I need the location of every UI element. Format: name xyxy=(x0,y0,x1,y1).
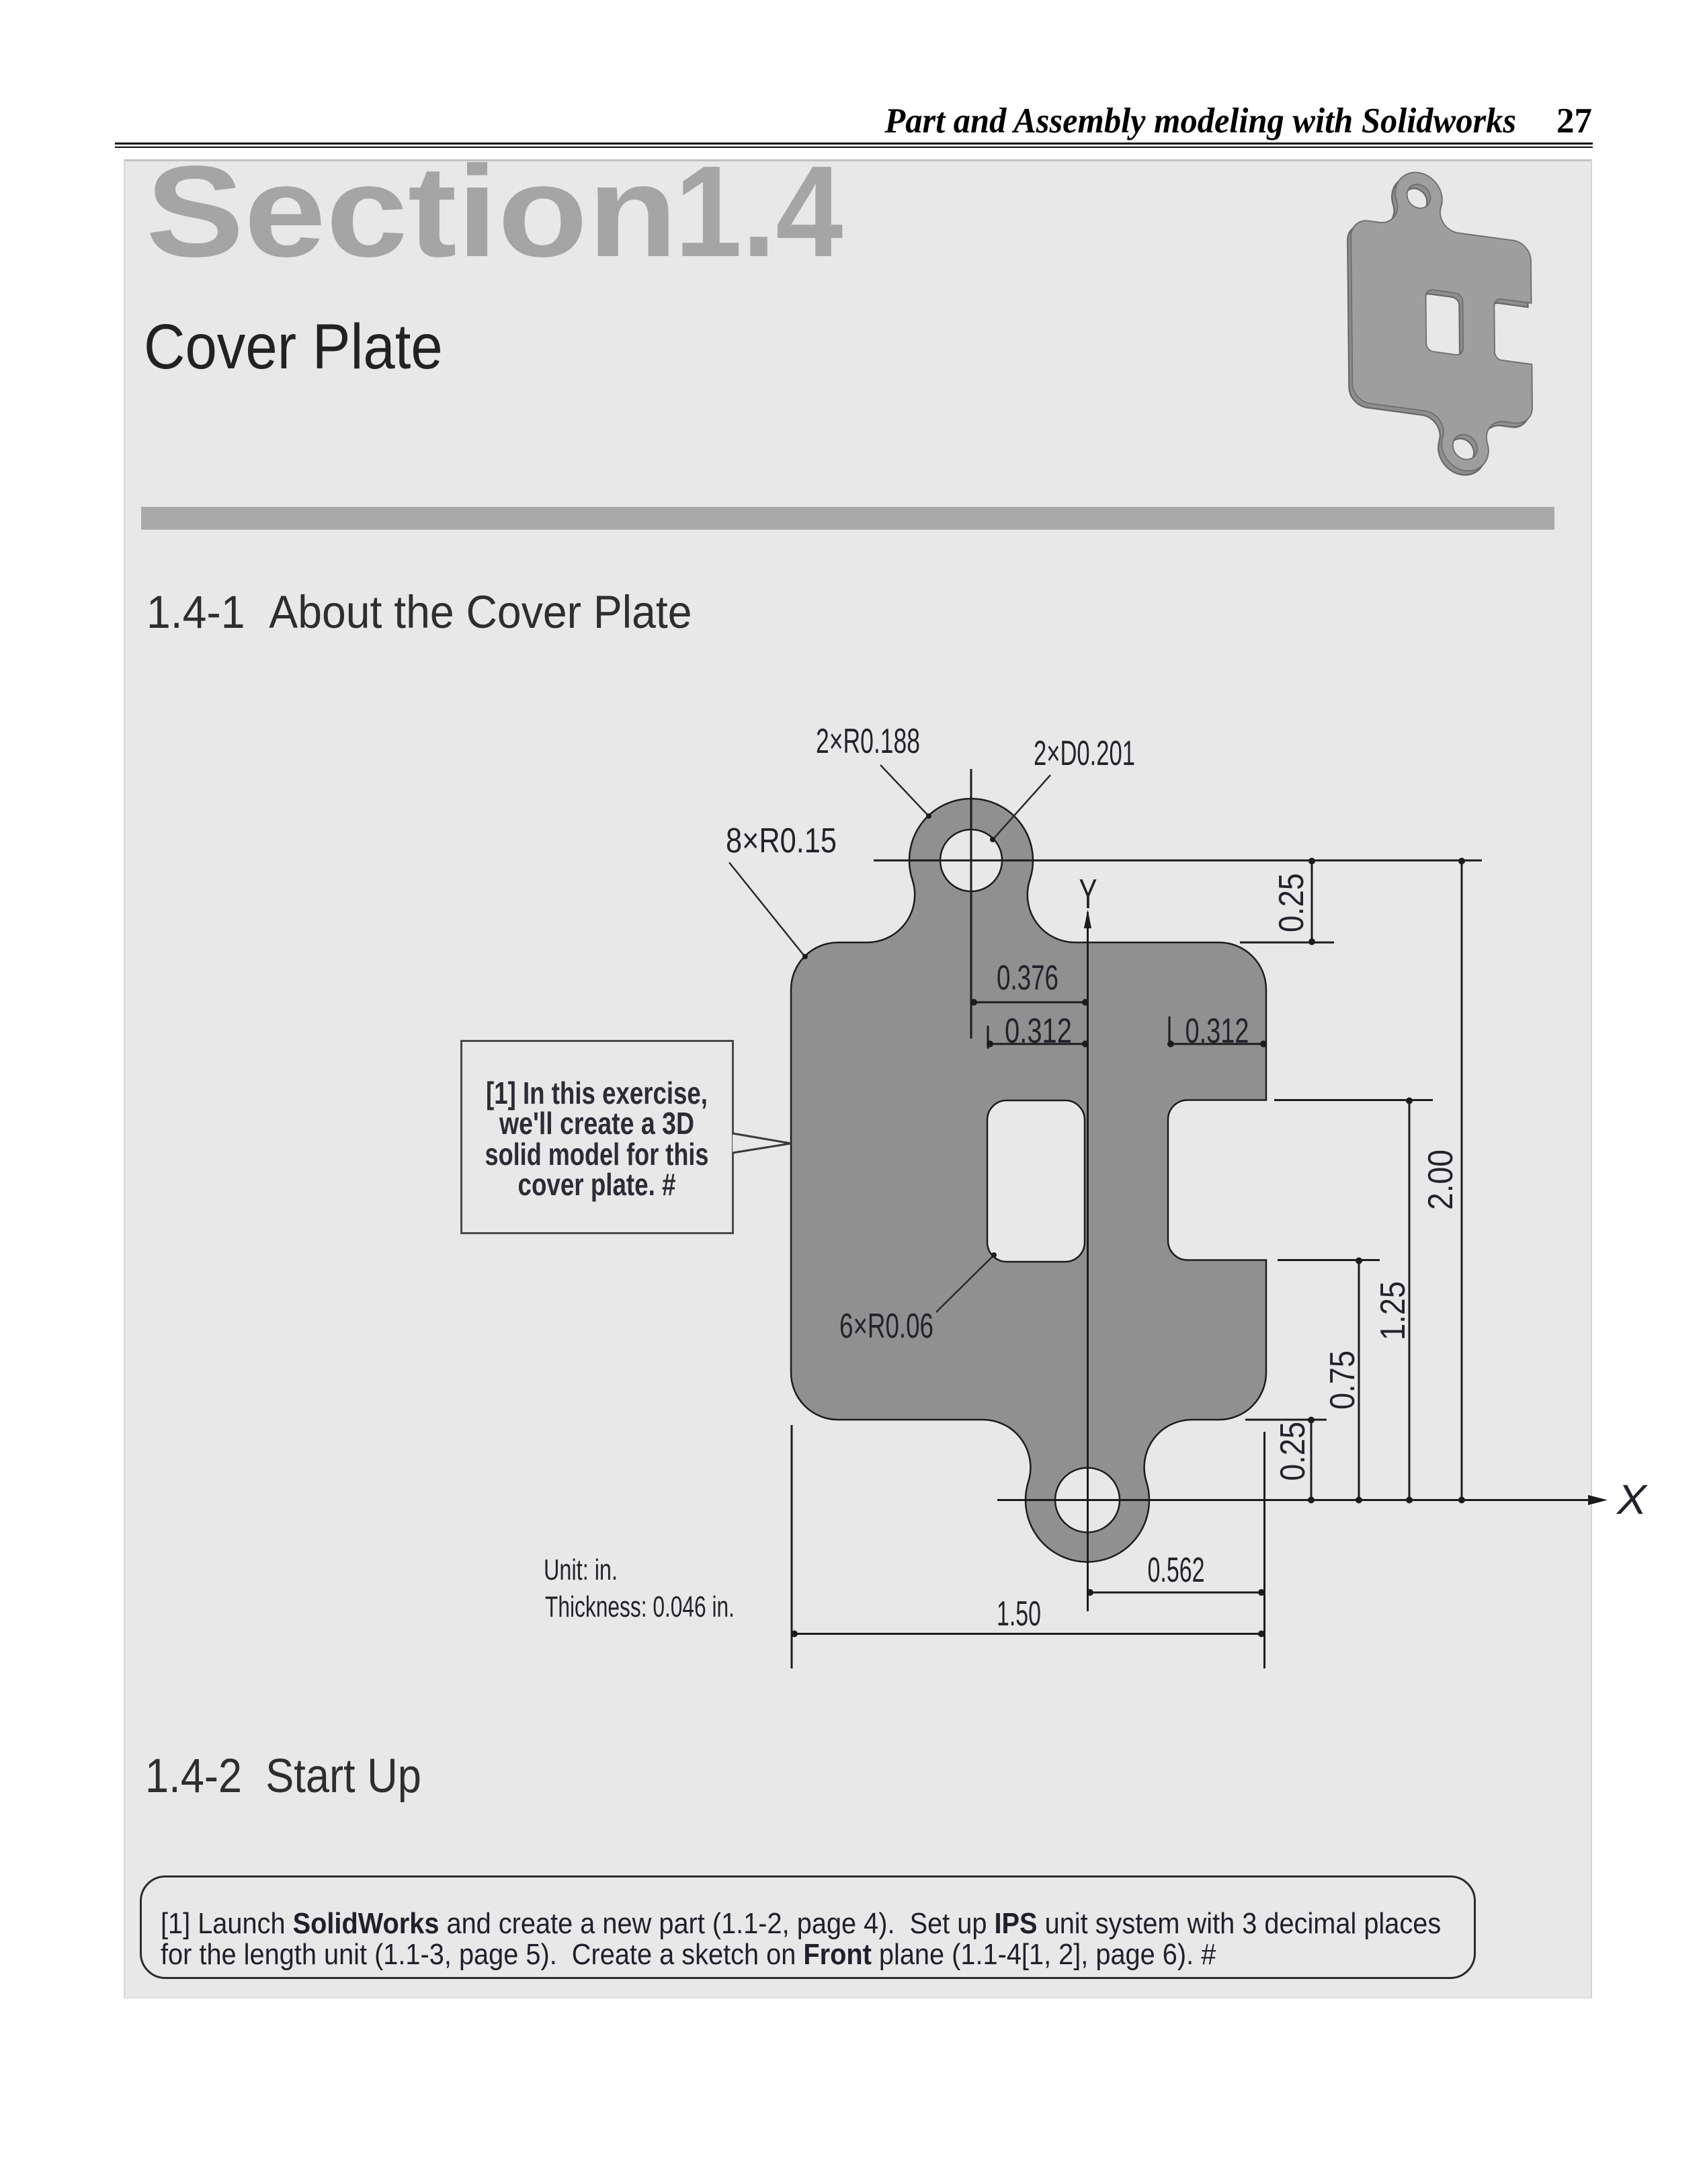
svg-text:we'll create a 3D: we'll create a 3D xyxy=(499,1106,694,1141)
svg-text:8×R0.15: 8×R0.15 xyxy=(726,821,837,860)
svg-text:2.00: 2.00 xyxy=(1421,1149,1460,1210)
svg-text:Unit: in.: Unit: in. xyxy=(544,1553,618,1586)
svg-text:0.562: 0.562 xyxy=(1148,1551,1205,1590)
svg-text:1.50: 1.50 xyxy=(997,1594,1041,1633)
svg-text:6×R0.06: 6×R0.06 xyxy=(839,1307,933,1346)
svg-text:cover plate. #: cover plate. # xyxy=(518,1167,676,1202)
svg-text:0.312: 0.312 xyxy=(1005,1012,1072,1051)
svg-text:2×D0.201: 2×D0.201 xyxy=(1034,734,1135,773)
svg-text:0.25: 0.25 xyxy=(1272,873,1311,932)
svg-text:0.75: 0.75 xyxy=(1323,1350,1362,1410)
svg-text:2×R0.188: 2×R0.188 xyxy=(816,722,920,761)
svg-text:0.376: 0.376 xyxy=(997,959,1058,998)
svg-text:0.25: 0.25 xyxy=(1274,1422,1313,1481)
svg-text:Y: Y xyxy=(1079,871,1097,918)
svg-text:Thickness: 0.046 in.: Thickness: 0.046 in. xyxy=(545,1590,735,1623)
svg-text:X: X xyxy=(1616,1477,1649,1523)
svg-text:1.25: 1.25 xyxy=(1374,1281,1413,1340)
svg-text:0.312: 0.312 xyxy=(1185,1012,1249,1051)
